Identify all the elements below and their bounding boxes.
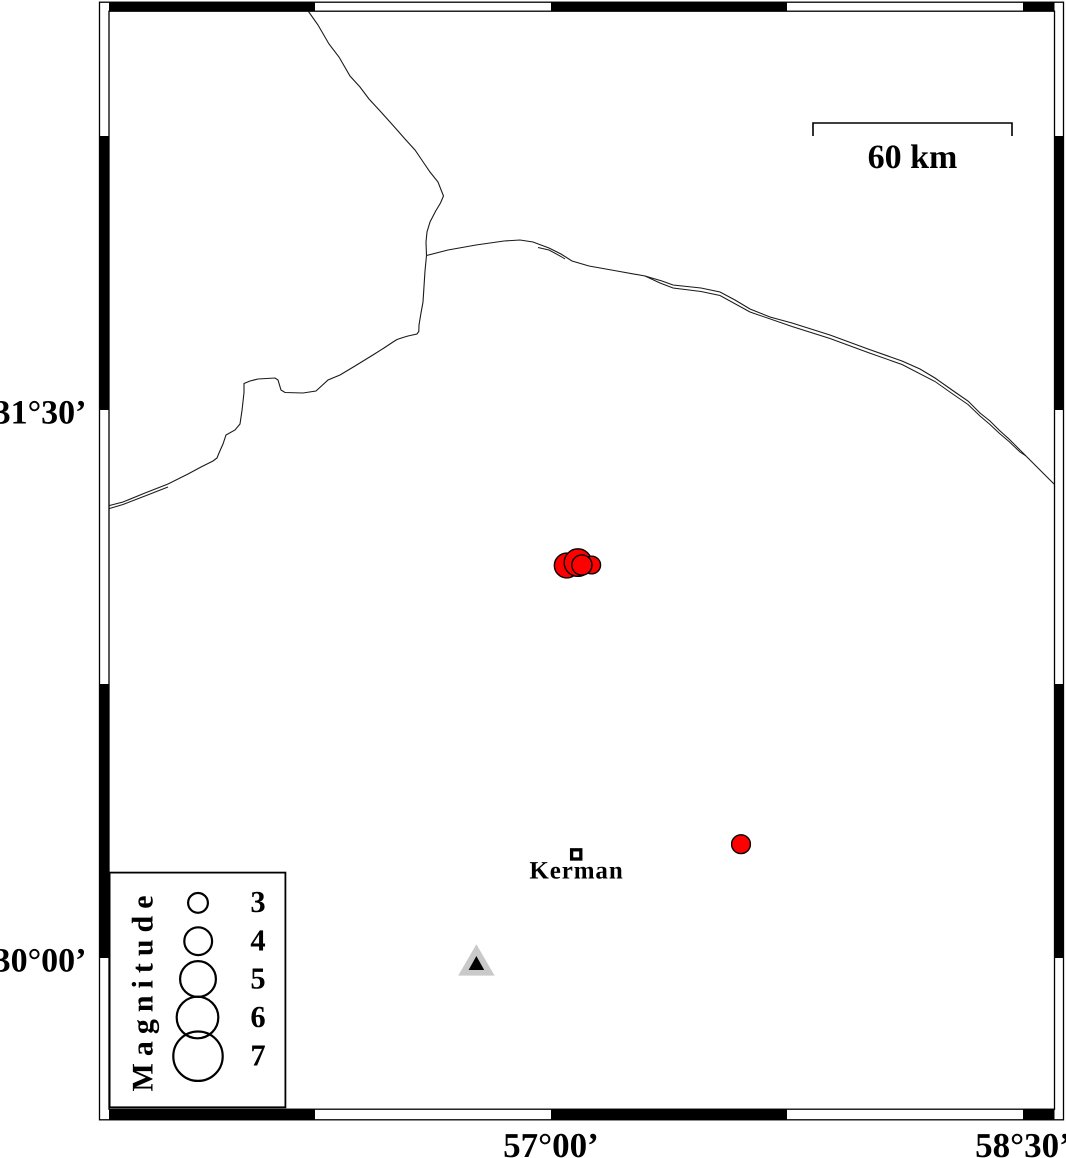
svg-text:4: 4 [250, 924, 265, 958]
svg-text:31°30’: 31°30’ [0, 395, 87, 432]
svg-text:Magnitude: Magnitude [126, 888, 159, 1091]
svg-text:7: 7 [250, 1039, 265, 1073]
svg-text:6: 6 [250, 1000, 265, 1034]
svg-text:3: 3 [250, 885, 265, 919]
svg-text:Kerman: Kerman [529, 858, 623, 885]
svg-text:58°30’: 58°30’ [975, 1126, 1066, 1158]
svg-text:57°00’: 57°00’ [503, 1126, 599, 1158]
svg-text:5: 5 [250, 962, 265, 996]
svg-text:60 km: 60 km [868, 139, 958, 176]
svg-text:30°00’: 30°00’ [0, 943, 87, 980]
